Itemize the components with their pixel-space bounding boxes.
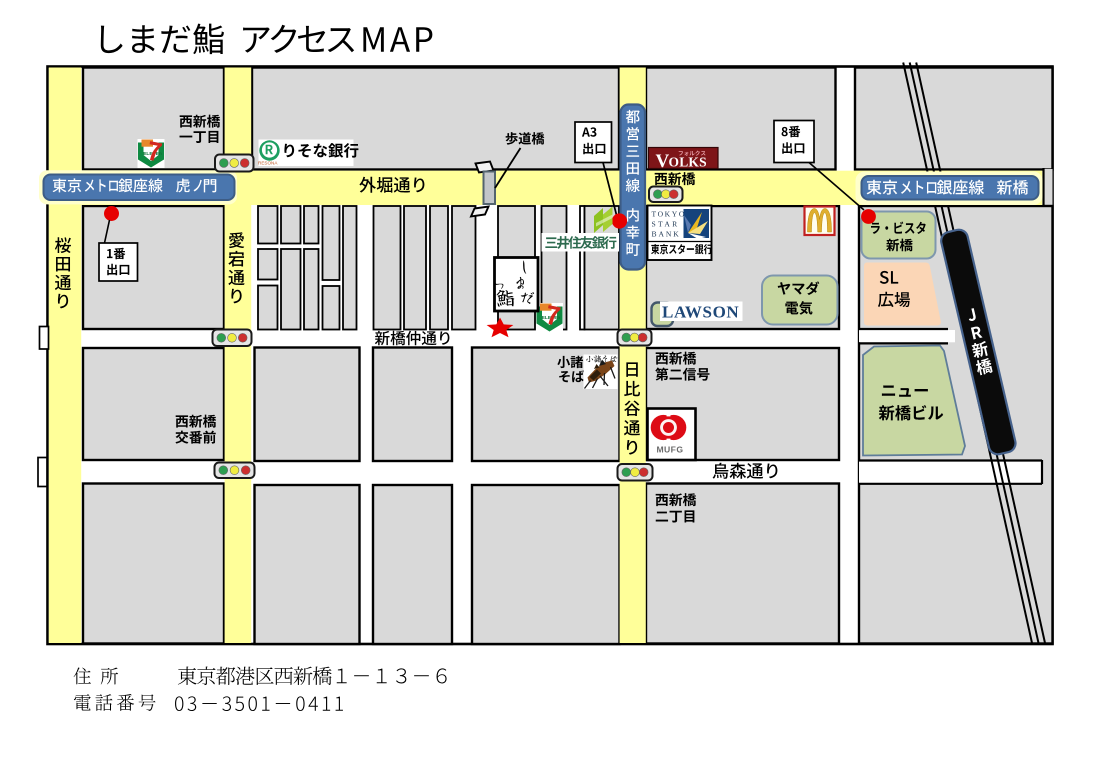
svg-text:STAR: STAR (652, 220, 680, 229)
svg-text:TOKYO: TOKYO (652, 210, 686, 219)
svg-text:LAWSON: LAWSON (662, 303, 739, 322)
svg-text:BANK: BANK (652, 230, 681, 239)
svg-text:OLKS: OLKS (669, 155, 707, 170)
svg-text:MUFG: MUFG (657, 445, 684, 455)
svg-text:RESONA: RESONA (258, 161, 278, 166)
svg-text:V: V (656, 151, 670, 172)
